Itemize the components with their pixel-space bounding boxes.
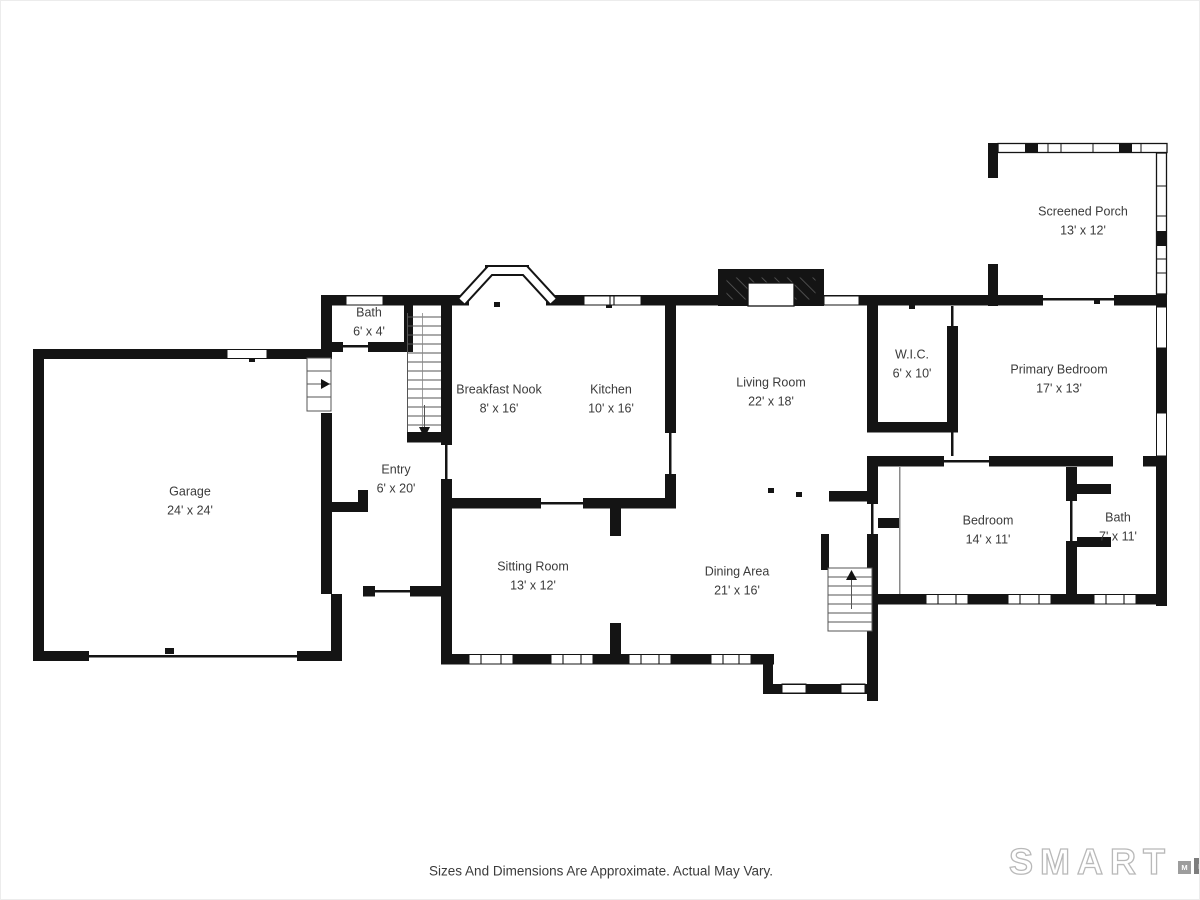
room-dims: 7' x 11' — [1099, 528, 1137, 547]
room-dims: 22' x 18' — [736, 393, 805, 412]
room-dims: 6' x 10' — [893, 365, 932, 384]
logo-mls-m: M — [1178, 861, 1191, 874]
room-name: Breakfast Nook — [456, 383, 541, 397]
smartmls-logo: SMART M L S — [1009, 849, 1200, 875]
room-name: Screened Porch — [1038, 205, 1128, 219]
room-label-bath-upper: Bath 6' x 4' — [353, 304, 385, 343]
walls — [33, 143, 1167, 701]
room-name: Bedroom — [963, 514, 1014, 528]
stairs-garage-steps — [307, 358, 331, 411]
room-name: W.I.C. — [895, 348, 929, 362]
bay-window — [462, 271, 553, 302]
room-name: Primary Bedroom — [1010, 363, 1107, 377]
room-dims: 10' x 16' — [588, 400, 634, 419]
room-dims: 6' x 20' — [377, 480, 416, 499]
room-name: Sitting Room — [497, 560, 569, 574]
room-label-garage: Garage 24' x 24' — [167, 483, 213, 522]
fireplace-icon — [718, 269, 824, 306]
floor-plan-drawing — [1, 1, 1200, 900]
room-dims: 14' x 11' — [963, 531, 1014, 550]
room-dims: 21' x 16' — [705, 582, 770, 601]
room-label-entry: Entry 6' x 20' — [377, 461, 416, 500]
room-label-breakfast-nook: Breakfast Nook 8' x 16' — [456, 381, 541, 420]
room-name: Entry — [381, 463, 410, 477]
room-name: Bath — [356, 306, 382, 320]
room-name: Garage — [169, 485, 211, 499]
room-label-living-room: Living Room 22' x 18' — [736, 374, 805, 413]
room-label-kitchen: Kitchen 10' x 16' — [588, 381, 634, 420]
room-label-bedroom: Bedroom 14' x 11' — [963, 512, 1014, 551]
room-dims: 17' x 13' — [1010, 380, 1107, 399]
room-label-wic: W.I.C. 6' x 10' — [893, 346, 932, 385]
logo-brand-text: SMART — [1009, 849, 1172, 875]
room-label-dining-area: Dining Area 21' x 16' — [705, 563, 770, 602]
room-label-primary-bedroom: Primary Bedroom 17' x 13' — [1010, 361, 1107, 400]
room-dims: 8' x 16' — [456, 400, 541, 419]
window-mullions — [481, 296, 1124, 664]
room-label-bath-lower: Bath 7' x 11' — [1099, 509, 1137, 548]
room-dims: 6' x 4' — [353, 323, 385, 342]
room-dims: 24' x 24' — [167, 502, 213, 521]
disclaimer-text: Sizes And Dimensions Are Approximate. Ac… — [429, 864, 773, 879]
room-name: Kitchen — [590, 383, 632, 397]
room-dims: 13' x 12' — [497, 577, 569, 596]
logo-mls-boxes: M L S — [1178, 852, 1200, 875]
room-name: Living Room — [736, 376, 805, 390]
room-name: Dining Area — [705, 565, 770, 579]
room-label-sitting-room: Sitting Room 13' x 12' — [497, 558, 569, 597]
room-label-screened-porch: Screened Porch 13' x 12' — [1038, 203, 1128, 242]
stairs-basement — [828, 568, 872, 631]
room-dims: 13' x 12' — [1038, 222, 1128, 241]
logo-mls-l: L — [1194, 858, 1200, 874]
room-name: Bath — [1105, 511, 1131, 525]
floor-plan: Garage 24' x 24' Bath 6' x 4' Entry 6' x… — [0, 0, 1200, 900]
